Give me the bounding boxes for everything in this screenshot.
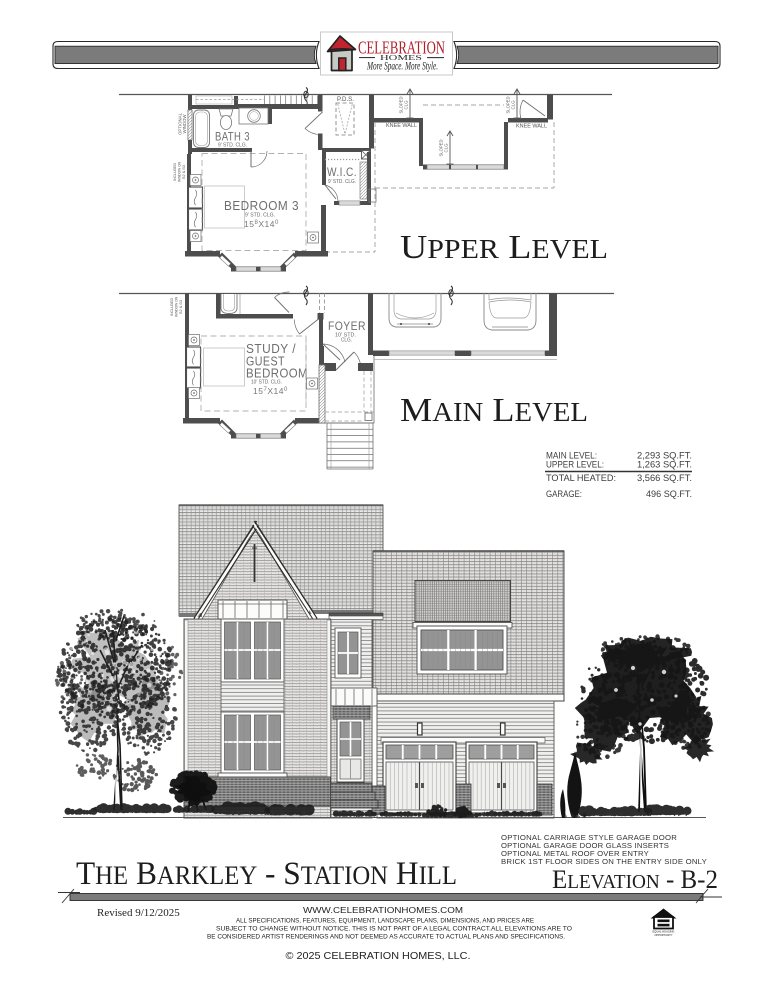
svg-text:UPPER LEVEL:: UPPER LEVEL:: [546, 460, 604, 470]
svg-text:UPPER LEVEL: UPPER LEVEL: [400, 229, 608, 266]
svg-text:157X140: 157X140: [253, 386, 288, 396]
svg-text:BATH 3: BATH 3: [215, 130, 250, 144]
svg-text:B2 & B3: B2 & B3: [182, 165, 186, 179]
svg-text:CLG: CLG: [404, 100, 409, 110]
svg-text:WINDOW ON: WINDOW ON: [178, 162, 182, 182]
svg-text:CLG: CLG: [511, 100, 516, 110]
svg-text:BEDROOM: BEDROOM: [246, 367, 308, 381]
svg-text:3,566 SQ.FT.: 3,566 SQ.FT.: [637, 473, 692, 484]
svg-text:9' STD. CLG.: 9' STD. CLG.: [328, 179, 356, 185]
svg-text:TOTAL HEATED:: TOTAL HEATED:: [546, 473, 616, 483]
svg-text:CLG.: CLG.: [341, 338, 352, 344]
svg-text:INCLUDED: INCLUDED: [173, 163, 177, 181]
svg-text:MAIN LEVEL: MAIN LEVEL: [400, 392, 588, 429]
svg-text:GARAGE:: GARAGE:: [546, 489, 582, 499]
svg-text:INCLUDED: INCLUDED: [170, 298, 174, 316]
svg-text:BEDROOM 3: BEDROOM 3: [224, 199, 299, 213]
svg-text:WINDOW ON: WINDOW ON: [175, 297, 179, 317]
svg-text:BE CONSIDERED ARTIST RENDERING: BE CONSIDERED ARTIST RENDERINGS AND NOT …: [207, 934, 565, 941]
svg-text:OPPORTUNITY: OPPORTUNITY: [655, 933, 673, 937]
svg-text:SUBJECT TO CHANGE WITHOUT NOTI: SUBJECT TO CHANGE WITHOUT NOTICE. THIS I…: [216, 926, 572, 933]
svg-text:Revised 9/12/2025: Revised 9/12/2025: [97, 907, 180, 919]
svg-text:FOYER: FOYER: [328, 319, 366, 333]
svg-text:More Space. More Style.: More Space. More Style.: [366, 61, 438, 73]
svg-text:10' STD. CLG.: 10' STD. CLG.: [251, 380, 282, 386]
svg-text:B2 & B3: B2 & B3: [179, 300, 183, 314]
svg-text:W.I.C.: W.I.C.: [327, 165, 357, 179]
svg-text:© 2025 CELEBRATION HOMES, LLC.: © 2025 CELEBRATION HOMES, LLC.: [286, 950, 471, 962]
svg-text:CLG: CLG: [444, 143, 449, 153]
svg-text:ALL SPECIFICATIONS, FEATURES,: ALL SPECIFICATIONS, FEATURES, EQUIPMENT,…: [236, 918, 534, 925]
svg-text:WWW.CELEBRATIONHOMES.COM: WWW.CELEBRATIONHOMES.COM: [303, 905, 463, 915]
svg-text:THE BARKLEY - STATION HILL: THE BARKLEY - STATION HILL: [76, 856, 457, 892]
svg-text:KNEE WALL: KNEE WALL: [386, 123, 417, 129]
svg-text:KNEE WALL: KNEE WALL: [516, 124, 547, 130]
svg-text:158X140: 158X140: [244, 219, 279, 229]
svg-text:1,263 SQ.FT.: 1,263 SQ.FT.: [637, 460, 692, 471]
svg-text:9' STD. CLG.: 9' STD. CLG.: [218, 143, 247, 149]
svg-text:496 SQ.FT.: 496 SQ.FT.: [646, 489, 692, 500]
svg-text:9' STD. CLG.: 9' STD. CLG.: [245, 213, 275, 219]
svg-text:P.D.S.: P.D.S.: [337, 96, 354, 103]
svg-text:WINDOW: WINDOW: [182, 114, 187, 133]
